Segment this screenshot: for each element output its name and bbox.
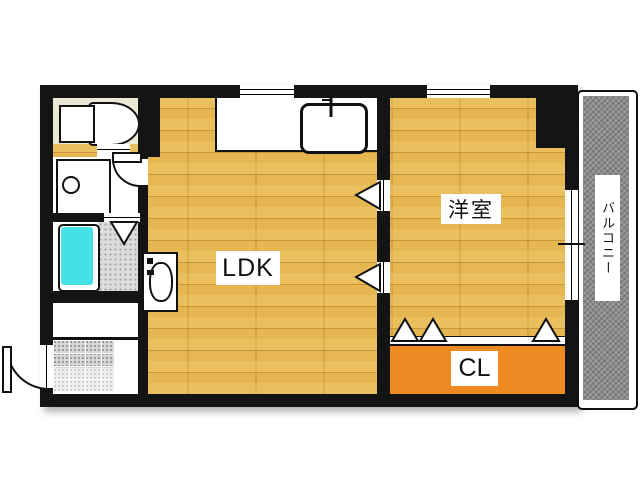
shower-floor bbox=[98, 222, 138, 291]
washbasin-tap-icon bbox=[147, 270, 154, 275]
entrance-door-arc bbox=[6, 347, 49, 390]
room-label-ldk: LDK bbox=[216, 251, 280, 285]
sliding-door-opening bbox=[377, 180, 390, 211]
entry-hall bbox=[53, 303, 138, 337]
bathtub-water bbox=[61, 227, 93, 285]
washbasin-tap-icon bbox=[147, 258, 153, 264]
bathroom-bottom-wall bbox=[40, 291, 148, 303]
sliding-door-opening bbox=[377, 262, 390, 293]
entrance-door-leaf bbox=[2, 346, 12, 393]
corner-pillar bbox=[536, 98, 565, 148]
service-column-wall bbox=[138, 98, 148, 394]
washbasin-bowl bbox=[149, 262, 173, 302]
closet-door-track bbox=[390, 336, 565, 346]
toilet-tank-icon bbox=[59, 105, 95, 143]
washroom-door-leaf bbox=[112, 152, 142, 163]
western-room-window bbox=[427, 85, 490, 98]
ldk-western-partition-wall bbox=[377, 98, 390, 394]
floor-plan: LDK 洋室 CL バルコニー bbox=[0, 0, 640, 480]
bathroom-doorway bbox=[104, 213, 140, 222]
genkan-side-floor bbox=[112, 340, 138, 394]
balcony-window bbox=[565, 190, 578, 300]
drain-icon bbox=[62, 176, 80, 194]
entrance-tiles bbox=[53, 340, 114, 391]
kitchen-sink-icon bbox=[300, 103, 368, 154]
room-label-closet: CL bbox=[451, 351, 498, 386]
ldk-window bbox=[240, 85, 294, 98]
entrance-tile-edge bbox=[53, 391, 114, 394]
room-label-western: 洋室 bbox=[441, 194, 501, 224]
room-label-balcony: バルコニー bbox=[595, 175, 620, 301]
